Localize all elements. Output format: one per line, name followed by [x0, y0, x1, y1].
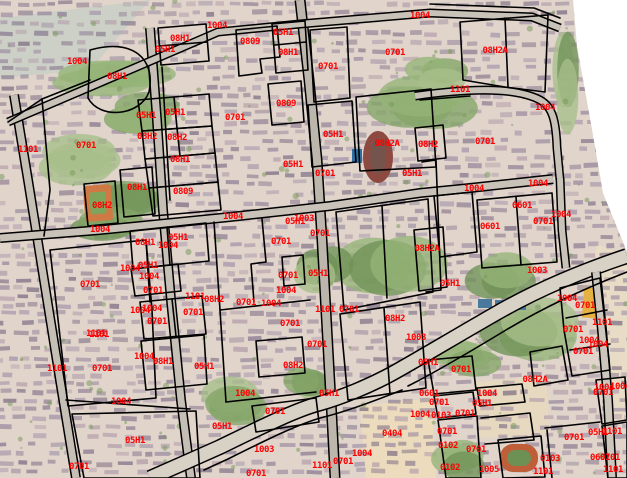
- parcel-label: 0701: [564, 433, 584, 443]
- parcel-label: 0601: [512, 201, 532, 211]
- parcel-label: 0701: [455, 409, 475, 419]
- parcel-label: 1004: [410, 11, 431, 21]
- parcel-label: 0809: [240, 37, 260, 47]
- parcel-label: 0404: [382, 429, 403, 439]
- parcel-label: 1003: [254, 445, 274, 455]
- parcel-label: 1004: [158, 241, 179, 251]
- parcel-label: 0701: [307, 340, 327, 350]
- parcel-label: 05H1: [155, 45, 175, 55]
- parcel-label: 1004: [261, 299, 282, 309]
- parcel-label: 1004: [90, 225, 111, 235]
- parcel-label: 05H1: [418, 358, 438, 368]
- parcel-label: 0701: [280, 319, 300, 329]
- parcel-label: 0701: [475, 137, 495, 147]
- parcel-label: 08H2A: [374, 139, 400, 149]
- parcel-label: 0701: [451, 365, 471, 375]
- blue-roof-building: [478, 299, 492, 308]
- parcel-label: 0701: [600, 453, 620, 463]
- parcel-label: 1003: [406, 333, 426, 343]
- parcel-label: 05H1: [440, 279, 460, 289]
- parcel-label: 0701: [339, 305, 359, 315]
- parcel-label: 08H2A: [522, 375, 548, 385]
- parcel-label: 0103: [431, 411, 451, 421]
- parcel-label: 05H1: [212, 422, 232, 432]
- parcel-label: 0701: [437, 427, 457, 437]
- parcel-label: 05H1: [308, 269, 328, 279]
- parcel-label: 0701: [385, 48, 405, 58]
- parcel-label: 0701: [147, 317, 167, 327]
- parcel-label: 1004: [67, 57, 88, 67]
- parcel-label: 0701: [278, 271, 298, 281]
- parcel-label: 0701: [533, 217, 553, 227]
- parcel-label: 08H1: [170, 34, 190, 44]
- parcel-label: 1004: [276, 286, 297, 296]
- parcel-label: 08H2: [385, 314, 405, 324]
- parcel-label: 1004: [352, 449, 373, 459]
- parcel-label: 0701: [246, 469, 266, 478]
- parcel-label: 0701: [76, 141, 96, 151]
- parcel-label: 1004: [142, 304, 163, 314]
- parcel-label: 1003: [294, 214, 314, 224]
- parcel-label: 08H2A: [414, 244, 440, 254]
- parcel-label: 0701: [271, 237, 291, 247]
- parcel-label: 0701: [80, 280, 100, 290]
- parcel-label: 1004: [207, 21, 228, 31]
- parcel-label: 1004: [551, 210, 572, 220]
- parcel-label: 0809: [173, 187, 193, 197]
- map-canvas[interactable]: 100408H108H105H105H105H108H208H211010701…: [0, 0, 627, 478]
- parcel-label: 05H1: [165, 108, 185, 118]
- parcel-label: 08H1: [127, 183, 147, 193]
- parcel-label: 1004: [111, 397, 132, 407]
- parcel-label: 1101: [603, 465, 623, 475]
- parcel-label: 1004: [134, 352, 155, 362]
- parcel-label: 1004: [235, 389, 256, 399]
- swimming-pool: [352, 149, 362, 163]
- parcel-label: 0701: [333, 457, 353, 467]
- parcel-label: 0102: [438, 441, 458, 451]
- parcel-label: 1004: [477, 389, 498, 399]
- parcel-label: 05H1: [323, 130, 343, 140]
- parcel-label: 08H1: [153, 357, 173, 367]
- parcel-label: 1004: [410, 410, 431, 420]
- cadastral-map-viewport: 100408H108H105H105H105H108H208H211010701…: [0, 0, 627, 478]
- parcel-label: 05H1: [136, 111, 156, 121]
- parcel-label: 0809: [276, 99, 296, 109]
- parcel-label: 0701: [466, 445, 486, 455]
- parcel-label: 0701: [69, 462, 89, 472]
- parcel-label: 05H1: [138, 261, 158, 271]
- parcel-label: 1101: [315, 305, 335, 315]
- parcel-label: 08H2A: [482, 46, 508, 56]
- parcel-label: 05H1: [283, 160, 303, 170]
- parcel-label: 08H2: [204, 295, 224, 305]
- parcel-label: 05H1: [125, 436, 145, 446]
- parcel-label: 0701: [236, 298, 256, 308]
- parcel-label: 0701: [593, 388, 613, 398]
- parcel-label: 0701: [429, 398, 449, 408]
- parcel-label: 0701: [315, 169, 335, 179]
- parcel-label: 05H1: [472, 399, 492, 409]
- parcel-label: 0103: [540, 454, 560, 464]
- parcel-label: 0601: [480, 222, 500, 232]
- parcel-label: 0701: [575, 301, 595, 311]
- school-field: [507, 450, 531, 466]
- parcel-label: 0701: [318, 62, 338, 72]
- parcel-label: 08H1: [107, 72, 127, 82]
- parcel-label: 08H2: [137, 132, 157, 142]
- parcel-label: 08H1: [278, 48, 298, 58]
- parcel-label: 05H1: [319, 389, 339, 399]
- parcel-label: 08H2: [418, 140, 438, 150]
- parcel-label: 08H1: [135, 238, 155, 248]
- parcel-label: 1101: [185, 292, 205, 302]
- parcel-label: 1101: [47, 364, 67, 374]
- parcel-label: 1101: [89, 330, 109, 340]
- parcel-label: 08H2: [167, 133, 187, 143]
- parcel-label: 1004: [223, 212, 244, 222]
- parcel-label: 1003: [527, 266, 547, 276]
- parcel-label: 1004: [464, 184, 485, 194]
- parcel-label: 1005: [479, 465, 499, 475]
- parcel-label: 05H1: [273, 28, 293, 38]
- parcel-label: 05H1: [402, 169, 422, 179]
- parcel-label: 0701: [265, 407, 285, 417]
- parcel-label: 1101: [592, 318, 612, 328]
- parcel-label: 1004: [528, 179, 549, 189]
- parcel-label: 0701: [563, 325, 583, 335]
- parcel-label: 08H2: [283, 361, 303, 371]
- parcel-label: 1004: [535, 103, 556, 113]
- parcel-label: 08H1: [170, 155, 190, 165]
- parcel-label: 05H1: [194, 362, 214, 372]
- parcel-label: 0701: [573, 347, 593, 357]
- parcel-label: 08H2: [92, 201, 112, 211]
- parcel-label: 0701: [143, 286, 163, 296]
- parcel-label: 1101: [312, 461, 332, 471]
- parcel-label: 1101: [18, 145, 38, 155]
- parcel-label: 1101: [602, 427, 622, 437]
- parcel-label: 0701: [183, 308, 203, 318]
- parcel-label: 0701: [310, 229, 330, 239]
- parcel-label: 1101: [450, 85, 470, 95]
- parcel-label: 0701: [92, 364, 112, 374]
- parcel-label: 1004: [139, 272, 160, 282]
- parcel-label: 0102: [440, 463, 460, 473]
- parcel-label: 1101: [533, 467, 553, 477]
- parcel-label: 0701: [225, 113, 245, 123]
